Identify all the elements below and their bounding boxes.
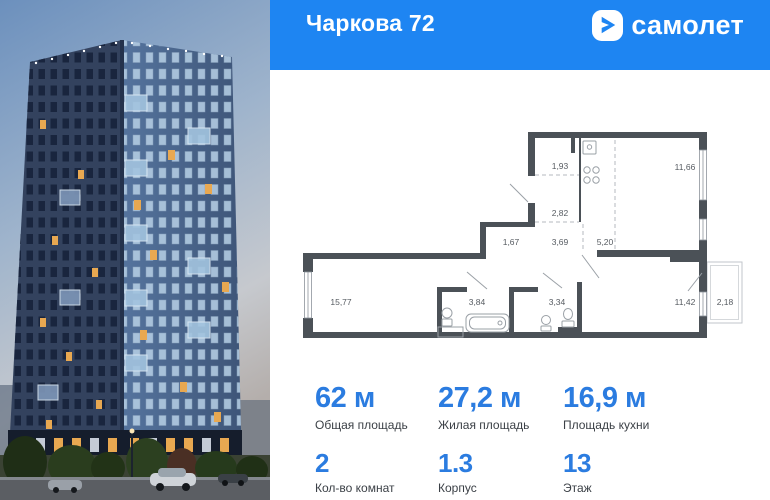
floor-plan: 1,93 11,66 2,82 1,67 3,69 5,20 15,77 3,8… — [296, 118, 746, 354]
room-label: 2,18 — [717, 297, 734, 307]
project-title: Чаркова 72 — [306, 9, 435, 37]
building-illustration — [0, 0, 270, 500]
room-label: 2,82 — [552, 208, 569, 218]
stat-floor: 13 Этаж — [563, 450, 685, 495]
stat-label: Площадь кухни — [563, 418, 685, 432]
balcony-outline — [707, 262, 742, 323]
zone-dividers — [535, 140, 615, 252]
stat-value: 62 м — [315, 384, 437, 413]
stat-value: 2 — [315, 450, 437, 476]
toilet-sink-icon — [541, 316, 551, 332]
stat-rooms-count: 2 Кол-во комнат — [315, 450, 437, 495]
stat-label: Жилая площадь — [438, 418, 560, 432]
bathtub-icon — [466, 314, 509, 332]
room-label: 11,42 — [675, 297, 696, 307]
room-label: 15,77 — [330, 297, 352, 307]
room-label: 1,93 — [552, 161, 569, 171]
header: Чаркова 72 самолет — [270, 0, 770, 70]
stat-value: 27,2 м — [438, 384, 560, 413]
room-label: 11,66 — [675, 162, 696, 172]
stat-living-area: 27,2 м Жилая площадь — [438, 384, 560, 432]
room-label: 1,67 — [503, 237, 520, 247]
washbasin-icon — [442, 308, 452, 326]
toilet-icon — [562, 309, 574, 328]
stat-label: Кол-во комнат — [315, 481, 437, 495]
windows — [305, 150, 707, 318]
walls — [303, 132, 707, 338]
samolet-logo-icon — [592, 10, 623, 41]
property-card[interactable]: Чаркова 72 самолет — [0, 0, 770, 500]
stat-total-area: 62 м Общая площадь — [315, 384, 437, 432]
stat-value: 13 — [563, 450, 685, 476]
stat-value: 16,9 м — [563, 384, 685, 413]
brand-logo: самолет — [592, 9, 744, 41]
details-panel: Чаркова 72 самолет — [270, 0, 770, 500]
building-photo — [0, 0, 270, 500]
room-labels: 1,93 11,66 2,82 1,67 3,69 5,20 15,77 3,8… — [330, 161, 733, 307]
stat-value: 1.3 — [438, 450, 560, 476]
stat-building: 1.3 Корпус — [438, 450, 560, 495]
tower — [8, 40, 242, 470]
room-label: 5,20 — [597, 237, 614, 247]
room-label: 3,34 — [549, 297, 566, 307]
stat-kitchen-area: 16,9 м Площадь кухни — [563, 384, 685, 432]
kitchen-sink-icon — [583, 141, 596, 154]
stove-icon — [584, 167, 599, 183]
stat-label: Корпус — [438, 481, 560, 495]
stat-label: Этаж — [563, 481, 685, 495]
brand-name: самолет — [631, 10, 744, 41]
room-label: 3,84 — [469, 297, 486, 307]
stat-label: Общая площадь — [315, 418, 437, 432]
room-label: 3,69 — [552, 237, 569, 247]
